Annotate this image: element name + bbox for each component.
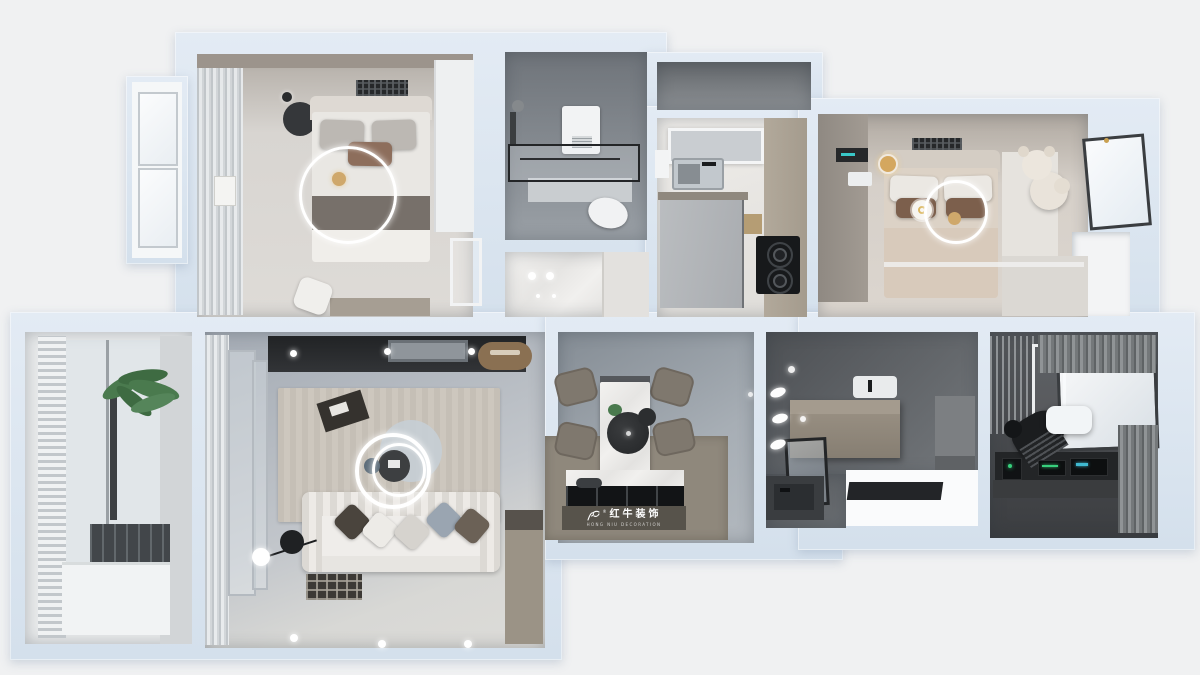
teddy-bear-ear-right — [1044, 146, 1055, 157]
kitchen-water-heater — [655, 150, 669, 178]
dining-downlight-1 — [788, 366, 795, 373]
island-logo-band: ® 红牛装饰 HONG NIU DECORATION — [562, 506, 686, 530]
floor-lamp-disc — [280, 530, 304, 554]
sofa-arm-left — [302, 492, 322, 572]
washbasin — [853, 376, 897, 398]
wall-art — [214, 176, 236, 206]
island-cooktop — [566, 486, 684, 508]
pc-led — [1008, 464, 1012, 468]
bull-logo-icon — [587, 510, 600, 521]
console-light-2 — [384, 348, 391, 355]
entry-downlight-1 — [528, 272, 536, 280]
door-mat — [306, 574, 362, 600]
living-curtains — [205, 335, 229, 645]
pendant-center-dot — [626, 431, 631, 436]
balcony-bench — [62, 562, 170, 635]
bedroom1-ring-light — [299, 146, 397, 244]
bedroom1-wardrobe — [434, 60, 474, 232]
bedroom1-wall-face — [197, 54, 473, 68]
stove-burner-bottom — [767, 268, 793, 294]
floor-mirror — [450, 238, 482, 306]
nook-cabinet — [935, 396, 975, 470]
teddy-bear-arm — [1054, 178, 1070, 194]
living-downlight-3 — [464, 640, 472, 648]
bay-window-pane-top — [138, 92, 178, 166]
monitor-1 — [1038, 460, 1066, 476]
study-curtain-right — [1118, 425, 1158, 533]
shower-glass-enclosure — [508, 144, 640, 182]
pc-tower — [1002, 458, 1022, 480]
shower-arm — [510, 112, 516, 146]
entry-downlight-3 — [536, 294, 540, 298]
bedroom2-ring-light — [924, 180, 988, 244]
entry-wood-tray — [478, 342, 532, 370]
living-downlight-1 — [290, 634, 298, 642]
cooktop-kettle — [576, 478, 602, 488]
dining-downlight-2 — [800, 416, 806, 422]
black-shelf — [847, 482, 944, 500]
gaming-chair-headrest — [1004, 420, 1022, 438]
tray-items — [490, 350, 520, 355]
floorplan-render: ® 红牛装饰 HONG NIU DECORATION — [0, 0, 1200, 675]
brand-name-en: HONG NIU DECORATION — [587, 522, 662, 527]
washbasin-faucet — [868, 380, 872, 392]
spotlight-fixture — [282, 92, 292, 102]
ring-chandelier-inner — [372, 443, 426, 497]
teddy-bear-ear-left — [1018, 146, 1029, 157]
vanity-faucet — [780, 488, 790, 492]
clock-digits — [841, 153, 855, 156]
monitor-2 — [1070, 458, 1108, 476]
kitchen-sink-basin — [678, 164, 700, 184]
bedroom2-wardrobe — [818, 114, 868, 302]
monitor-2-glow — [1076, 463, 1088, 466]
balcony-dark-mat — [90, 524, 170, 562]
bay-window-pane-bottom — [138, 168, 178, 248]
pendant-lamp-ear — [638, 408, 656, 426]
console-light-3 — [468, 348, 475, 355]
wall-sconce-gold — [878, 154, 898, 174]
monitor-1-glow — [1042, 465, 1058, 467]
hall-column — [505, 530, 543, 644]
tv-flat — [388, 340, 468, 362]
study-curtain-top — [1038, 335, 1156, 373]
entry-cabinet — [602, 252, 649, 317]
stove-burner-top — [767, 242, 793, 268]
entry-downlight-2 — [546, 272, 554, 280]
balcony-rod — [110, 392, 117, 520]
bed-end-rail — [884, 262, 1084, 267]
brand-name-cn: 红牛装饰 — [610, 510, 662, 520]
hall-column-cap — [505, 510, 543, 532]
console-light-1 — [290, 350, 297, 357]
ac-unit — [1046, 406, 1092, 434]
spice-box — [744, 214, 762, 234]
bedroom2-window — [1082, 133, 1152, 230]
shower-glass-bar — [520, 158, 620, 160]
window-hinge-gold — [1104, 138, 1109, 143]
kitchen-faucet — [702, 162, 716, 166]
desk-platform — [993, 480, 1135, 498]
registered-mark: ® — [603, 510, 607, 514]
ac-ledge-floor — [657, 62, 811, 110]
floor-lamp-bulb — [252, 548, 270, 566]
living-downlight-2 — [378, 640, 386, 648]
bedroom1-desk — [330, 298, 430, 316]
entry-door-leaf — [660, 200, 744, 308]
dining-downlight-3 — [748, 392, 753, 397]
entry-door-frame — [658, 192, 748, 200]
shower-head — [512, 100, 524, 112]
ac-control-panel — [848, 172, 872, 186]
entry-downlight-4 — [552, 294, 556, 298]
